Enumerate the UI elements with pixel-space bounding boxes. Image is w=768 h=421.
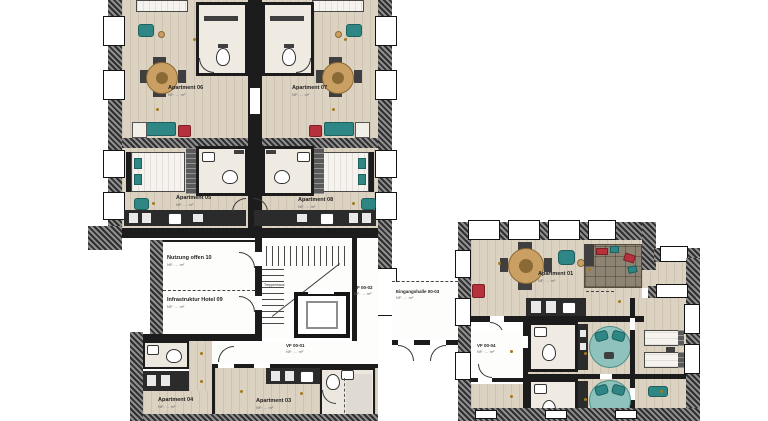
shower-bar <box>234 150 244 154</box>
appliance <box>270 370 281 382</box>
door-gap <box>255 252 262 266</box>
sink <box>341 370 354 380</box>
sink <box>534 384 547 394</box>
appliance <box>530 300 542 314</box>
window <box>455 352 471 380</box>
chaise <box>132 122 147 138</box>
window <box>684 304 700 334</box>
apartment-07-area: NF: … m² <box>292 93 309 97</box>
bench <box>648 386 668 397</box>
window <box>103 150 125 178</box>
table-center <box>156 72 168 84</box>
window <box>455 298 471 326</box>
apartment-01-area: NF: … m² <box>538 279 555 283</box>
window <box>656 284 688 298</box>
pillow-red <box>596 248 608 255</box>
vf-00-02-label: VF 00-02 <box>354 286 373 291</box>
apartment-03-label: Apartment 03 <box>256 399 291 405</box>
toilet <box>222 170 238 184</box>
elevator-door <box>308 290 334 294</box>
chaise <box>355 122 370 138</box>
appliance <box>579 329 587 338</box>
exterior-wall-corner <box>642 222 656 270</box>
window <box>103 16 125 46</box>
sofa <box>324 122 354 136</box>
armchair <box>138 24 154 37</box>
window <box>375 16 397 46</box>
sink <box>534 327 547 337</box>
infrastruktur-area: NF: … m² <box>167 305 184 309</box>
room-divider-dashed <box>163 290 255 291</box>
apartment-06-label: Apartment 06 <box>168 86 203 92</box>
appliance <box>284 370 295 382</box>
armchair <box>134 198 149 210</box>
ceiling-light-dot <box>300 392 303 395</box>
window <box>375 150 397 178</box>
apartment-07-label: Apartment 07 <box>292 86 327 92</box>
side-table <box>158 31 165 38</box>
cooktop <box>192 213 204 223</box>
appliance <box>141 212 152 224</box>
chair <box>178 70 186 83</box>
cooktop <box>296 213 308 223</box>
kitchen-sink <box>562 302 576 314</box>
chair <box>500 258 508 272</box>
pillow <box>358 174 366 185</box>
appliance <box>348 212 359 224</box>
sink <box>147 345 159 355</box>
armchair-red <box>472 284 485 298</box>
armchair <box>361 198 376 210</box>
window <box>545 410 567 419</box>
shower-bar <box>266 150 276 154</box>
ceiling-light-dot <box>618 300 621 303</box>
appliance <box>545 300 557 314</box>
ceiling-light-dot <box>498 262 501 265</box>
cistern <box>218 44 228 48</box>
vf-00-04-label: VF 00-04 <box>477 344 496 349</box>
vf-00-01-label: VF 00-01 <box>286 344 305 349</box>
door-gap <box>630 318 635 330</box>
elevator-car <box>306 301 338 329</box>
apartment-05-area: NF: … m² <box>176 203 193 207</box>
appliance <box>128 212 139 224</box>
infrastruktur-label: Infrastruktur Hotel 09 <box>167 298 223 304</box>
eingangshalle-area: NF: … m² <box>396 296 413 300</box>
door-gap <box>490 316 504 322</box>
nutzung-offen-area: NF: … m² <box>167 263 184 267</box>
ceiling-light-dot <box>332 108 335 111</box>
apartment-03-area: NF: … m² <box>256 406 273 410</box>
platform-back <box>584 244 594 266</box>
ceiling-light-dot <box>344 38 347 41</box>
ceiling-light-dot <box>240 390 243 393</box>
appliance <box>579 342 587 351</box>
apartment-08-area: NF: … m² <box>298 205 315 209</box>
toilet <box>274 170 290 184</box>
shower-area <box>346 374 372 418</box>
toilet <box>326 374 340 390</box>
appliance <box>160 374 171 387</box>
ceiling-light-dot <box>588 268 591 271</box>
window <box>103 192 125 220</box>
side-table <box>335 31 342 38</box>
toilet <box>166 349 182 363</box>
exterior-wall-stub <box>88 226 122 250</box>
bed <box>136 0 188 12</box>
wardrobe <box>314 148 324 194</box>
window <box>548 220 580 240</box>
kitchen-sink <box>320 213 334 225</box>
ceiling-light-dot <box>660 390 663 393</box>
apartment-01-label: Apartment 01 <box>538 272 573 278</box>
apartment-04-area: NF: … m² <box>158 405 175 409</box>
door-arc <box>430 345 446 361</box>
exterior-wall-east <box>686 258 700 421</box>
vf-00-01-area: NF: … m² <box>286 350 303 354</box>
eingangshalle-label: Eingangshalle 00-03 <box>396 290 439 295</box>
window <box>615 410 637 419</box>
ceiling-light-dot <box>584 352 587 355</box>
armchair-red <box>178 125 191 137</box>
window <box>375 70 397 100</box>
apartment-04-label: Apartment 04 <box>158 398 193 404</box>
vf-00-04-area: NF: … m² <box>477 350 494 354</box>
bed <box>312 0 364 12</box>
ceiling-light-dot <box>584 398 587 401</box>
chair <box>354 70 362 83</box>
central-shaft-wall <box>248 0 262 230</box>
headboard <box>678 330 684 346</box>
headboard <box>678 352 684 368</box>
shower-bar <box>204 16 238 21</box>
door-gap <box>478 378 492 382</box>
floor-plan: Apartment 06 NF: … m² Apartment 07 NF: …… <box>0 0 768 421</box>
sofa <box>146 122 176 136</box>
window <box>660 246 688 262</box>
apartment-08-label: Apartment 08 <box>298 198 333 204</box>
armchair <box>346 24 362 37</box>
cistern <box>284 44 294 48</box>
shower-bar <box>270 16 304 21</box>
ceiling-light-dot <box>200 380 203 383</box>
ceiling-light-dot <box>510 350 513 353</box>
door-gap <box>600 374 612 379</box>
appliance <box>361 212 372 224</box>
toilet <box>216 48 230 66</box>
sink <box>297 152 310 162</box>
table-center <box>332 72 344 84</box>
window <box>375 192 397 220</box>
dashed-line <box>586 291 614 292</box>
lounge-chair <box>558 250 575 265</box>
sink <box>202 152 215 162</box>
pillow <box>358 158 366 169</box>
treppenhaus-label: Treppenhaus <box>264 284 285 288</box>
nutzung-offen-label: Nutzung offen 10 <box>167 256 212 262</box>
cut-edge <box>143 414 378 421</box>
ceiling-light-dot <box>152 202 155 205</box>
exterior-wall <box>130 332 143 421</box>
table-center <box>519 259 533 273</box>
ceiling-light-dot <box>193 38 196 41</box>
exterior-wall-west-lower <box>150 240 163 336</box>
armchair-red <box>309 125 322 137</box>
shower-curtain <box>344 378 345 418</box>
door-gap <box>255 296 262 310</box>
ceiling-light-dot <box>200 352 203 355</box>
pillow-teal <box>610 246 619 253</box>
kitchen-sink <box>168 213 182 225</box>
headboard <box>369 152 374 192</box>
chair <box>544 258 552 272</box>
window <box>475 410 497 419</box>
door-arc <box>398 345 414 361</box>
toilet <box>542 344 556 361</box>
blanket-fold <box>604 352 614 359</box>
ceiling-light-dot <box>352 202 355 205</box>
wall <box>143 334 262 341</box>
pillow <box>134 158 142 169</box>
window <box>103 70 125 100</box>
window <box>508 220 540 240</box>
vf-00-02-area: NF: … m² <box>354 292 371 296</box>
pillow <box>134 174 142 185</box>
appliance <box>146 374 157 387</box>
ceiling-light-dot <box>510 395 513 398</box>
window <box>684 344 700 374</box>
shaft-gap <box>250 88 260 114</box>
toilet <box>282 48 296 66</box>
ceiling-light-dot <box>156 108 159 111</box>
kitchen-sink <box>300 371 314 383</box>
entrance-dashed-edge <box>392 281 458 282</box>
window <box>468 220 500 240</box>
nightstand <box>666 347 675 352</box>
window <box>455 250 471 278</box>
apartment-05-label: Apartment 05 <box>176 196 211 202</box>
window <box>588 220 616 240</box>
apartment-06-area: NF: … m² <box>168 93 185 97</box>
wardrobe <box>186 148 196 194</box>
